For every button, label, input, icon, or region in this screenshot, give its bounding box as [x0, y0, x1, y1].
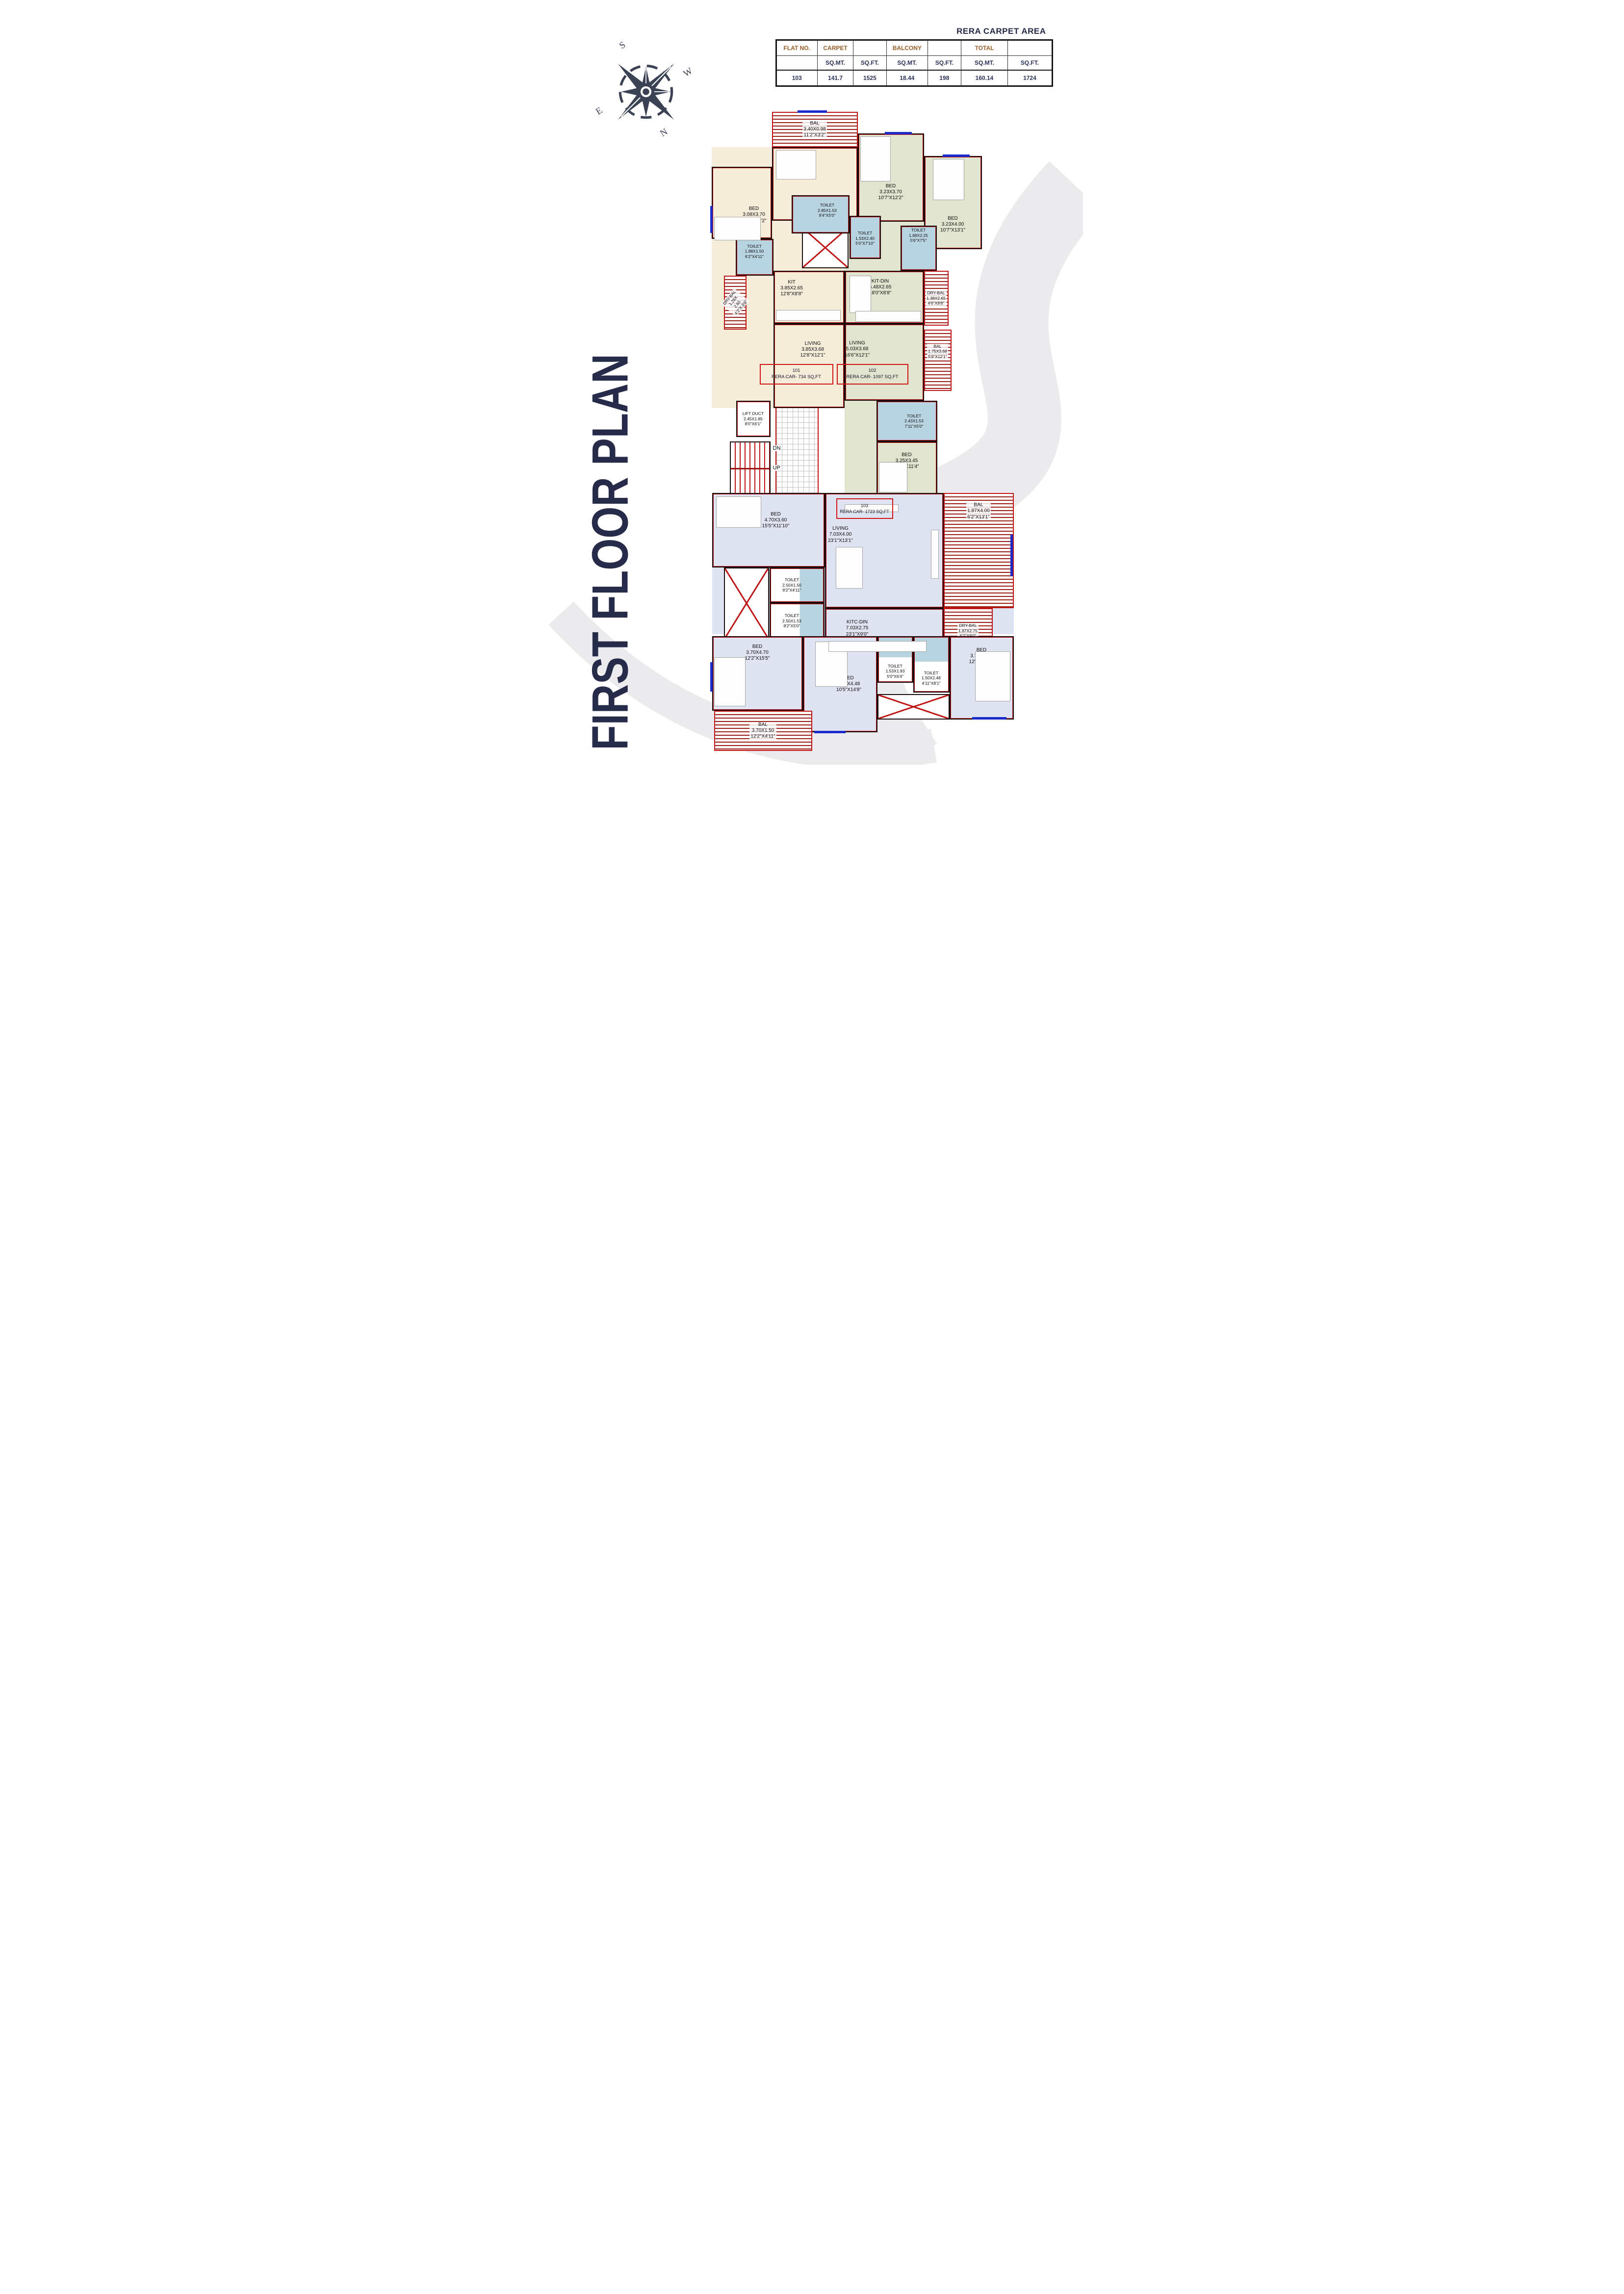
flat-101-rera-area: RERA CAR- 734 SQ,FT — [772, 374, 821, 381]
service-shaft — [724, 567, 769, 639]
living-102: LIVING5.03X3.6816'6"X12'1" — [845, 324, 924, 401]
living-102-label: LIVING5.03X3.6816'6"X12'1" — [845, 340, 870, 359]
balcony-103-a: BAL1.87X4.006'2"X13'1" — [944, 493, 1014, 608]
page-title: FIRST FLOOR PLAN — [575, 368, 645, 750]
balcony-103-b: BAL3.70X1.5012'2"X4'11" — [714, 711, 812, 751]
dry-balcony-102: DRY-BAL1.38X2.654'6"X8'8" — [924, 271, 949, 326]
toilet-103-b-label: TOILET2.50X1.538'2"X5'0" — [782, 613, 801, 628]
rera-area-table: FLAT NO. CARPET BALCONY TOTAL SQ.MT. SQ.… — [775, 39, 1053, 87]
toilet-102-a-label: TOILET2.85X1.539'4"X5'0" — [818, 203, 837, 218]
bed-furniture — [975, 651, 1010, 701]
toilet-102-c-label: TOILET1.68X2.255'6"X7'5" — [909, 228, 928, 243]
col-total: TOTAL — [961, 40, 1008, 56]
stairs-up-label: UP — [772, 465, 781, 471]
bed-furniture — [933, 159, 964, 200]
flat-102-number: 102 — [869, 368, 876, 374]
dry-balcony-101: DRY-BAL1.28X 2.654'2"X 8'8" — [724, 276, 747, 330]
table-row: 103 141.7 1525 18.44 198 160.14 1724 — [776, 70, 1052, 86]
bedroom-102-b-label: BED3.23X4.0010'7"X13'1" — [940, 216, 965, 234]
lift-duct-label: LIFT DUCT2.45X1.858'0"X6'1" — [743, 411, 764, 426]
toilet-102-d: TOILET2.43X1.537'11"X5'0" — [876, 401, 937, 441]
compass-rose: S W N E — [599, 45, 693, 138]
window-marker — [710, 206, 713, 233]
flat-102-rera-box: 102 RERA CAR- 1097 SQ,FT — [837, 364, 908, 385]
bedroom-103-a-label: BED4.70X3.6015'5"X11'10" — [762, 512, 790, 530]
staircase — [730, 441, 771, 494]
dry-balcony-102-label: DRY-BAL1.38X2.654'6"X8'8" — [926, 290, 947, 306]
flat-103-rera-box: 103 RERA CAR- 1723 SQ,FT — [836, 498, 893, 519]
toilet-102-a: TOILET2.85X1.539'4"X5'0" — [792, 195, 850, 233]
living-101-label: LIVING3.85X3.6812'8"X12'1" — [800, 341, 825, 359]
lift-duct: LIFT DUCT2.45X1.858'0"X6'1" — [736, 401, 771, 437]
window-marker — [814, 731, 846, 733]
table-title: RERA CARPET AREA — [775, 26, 1053, 36]
toilet-103-d-label: TOILET1.50X2.484'11"X8'1" — [922, 670, 941, 686]
dry-balcony-101-label: DRY-BAL1.28X 2.654'2"X 8'8" — [721, 288, 749, 317]
kitchen-dining-102-label: KIT-DIN5.48X2.6518'0"X8'8" — [869, 279, 892, 297]
toilet-102-b-label: TOILET1.53X2.405'0"X7'10" — [855, 231, 875, 246]
balcony-103-a-label: BAL1.87X4.006'2"X13'1" — [966, 502, 991, 520]
toilet-101: TOILET1.88X1.506'2"X4'11" — [736, 239, 773, 276]
flat-103-number: 103 — [861, 503, 868, 509]
window-marker — [972, 717, 1006, 720]
window-marker — [885, 132, 912, 134]
toilet-103-c-label: TOILET1.53X1.935'0"X6'4" — [886, 664, 905, 679]
kitchen-counter — [855, 311, 921, 322]
bed-furniture — [714, 657, 746, 706]
service-shaft — [877, 694, 950, 720]
kitchen-101-label: KIT3.85X2.6512'8"X8'8" — [780, 280, 803, 298]
balcony-102: BAL1.75X3.685'9"X12'1" — [924, 330, 952, 391]
dining-table — [836, 547, 863, 589]
bed-furniture — [776, 150, 816, 180]
bed-furniture — [716, 496, 761, 528]
window-marker — [1010, 535, 1013, 576]
toilet-101-label: TOILET1.88X1.506'2"X4'11" — [745, 244, 764, 259]
toilet-102-c: TOILET1.68X2.255'6"X7'5" — [901, 226, 937, 271]
floor-plan-page: S W N E RERA CARPET AREA FLAT NO. CARPET… — [541, 0, 1083, 765]
stairs-dn-label: DN — [772, 445, 781, 451]
dining-table — [850, 276, 871, 313]
bed-furniture — [714, 217, 761, 240]
flat-103-rera-area: RERA CAR- 1723 SQ,FT — [840, 509, 889, 515]
toilet-103-b: TOILET2.50X1.538'2"X5'0" — [770, 603, 825, 639]
balcony-103-b-label: BAL3.70X1.5012'2"X4'11" — [749, 722, 776, 740]
kitchen-counter — [776, 310, 841, 321]
sofa — [931, 530, 939, 579]
toilet-103-a-label: TOILET2.50X1.508'2"X4'11" — [782, 577, 801, 593]
bedroom-103-b-label: BED3.70X4.7012'2"X15'5" — [745, 644, 770, 662]
toilet-102-d-label: TOILET2.43X1.537'11"X5'0" — [904, 413, 924, 429]
balcony-101-top: BAL3.40X0.9811'2"X3'2" — [772, 112, 858, 147]
kitchen-dining-103-label: KITC-DIN7.03X2.7523'1"X9'0" — [846, 619, 869, 638]
flat-101-number: 101 — [793, 368, 800, 374]
col-balcony: BALCONY — [886, 40, 928, 56]
toilet-102-b: TOILET1.53X2.405'0"X7'10" — [850, 216, 881, 259]
kitchen-counter — [828, 641, 927, 652]
window-marker — [943, 155, 970, 157]
toilet-103-a: TOILET2.50X1.508'2"X4'11" — [770, 567, 825, 603]
bed-furniture — [860, 136, 891, 181]
window-marker — [710, 662, 713, 692]
col-flat-no: FLAT NO. — [776, 40, 817, 56]
living-103-label: LIVING7.03X4.0023'1"X13'1" — [828, 526, 853, 544]
window-marker — [798, 110, 827, 113]
compass-star-icon — [604, 50, 688, 133]
balcony-102-label: BAL1.75X3.685'9"X12'1" — [927, 344, 948, 359]
rera-area-table-block: RERA CARPET AREA FLAT NO. CARPET BALCONY… — [775, 26, 1053, 87]
bedroom-102-a-label: BED3.23X3.7010'7"X12'2" — [878, 183, 903, 202]
flat-102-rera-area: RERA CAR- 1097 SQ,FT — [846, 374, 898, 381]
balcony-101-top-label: BAL3.40X0.9811'2"X3'2" — [802, 121, 827, 139]
col-carpet: CARPET — [817, 40, 853, 56]
bed-furniture — [879, 462, 907, 492]
flat-101-rera-box: 101 RERA CAR- 734 SQ,FT — [760, 364, 833, 385]
